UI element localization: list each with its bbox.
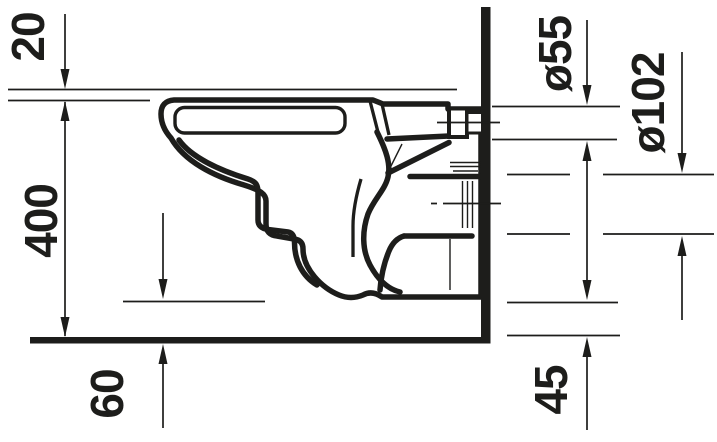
drawing-canvas: 20 400 60 ø55 ø102 45 <box>0 0 717 442</box>
dim-102-arrow-up <box>678 236 687 256</box>
wall <box>481 7 491 343</box>
dim-400-arrow-down <box>61 317 70 337</box>
dim-55-arrow-up <box>583 141 592 161</box>
dim-55-arrow-down <box>583 85 592 105</box>
dim-label-45: 45 <box>525 365 577 415</box>
dim-60-arrow-down <box>159 279 168 299</box>
dim-45-arrow-up <box>583 337 592 357</box>
dim-302-arrow-down <box>583 280 592 300</box>
dim-label-20: 20 <box>2 12 54 61</box>
dim-label-60: 60 <box>81 369 133 418</box>
seat-ring <box>175 108 345 134</box>
toilet-technical-drawing: 20 400 60 ø55 ø102 45 <box>0 0 717 442</box>
dim-label-o102: ø102 <box>622 53 674 154</box>
flush-housing-bottom <box>387 136 449 139</box>
dim-label-o55: ø55 <box>529 15 581 92</box>
toilet-section <box>161 100 483 298</box>
dim-20-arrow-down <box>61 69 70 89</box>
dim-60-arrow-up <box>159 344 168 364</box>
dim-label-400: 400 <box>15 184 67 258</box>
dim-102-arrow-down <box>678 153 687 173</box>
floor <box>30 337 491 344</box>
dim-400-arrow-up <box>61 101 70 121</box>
